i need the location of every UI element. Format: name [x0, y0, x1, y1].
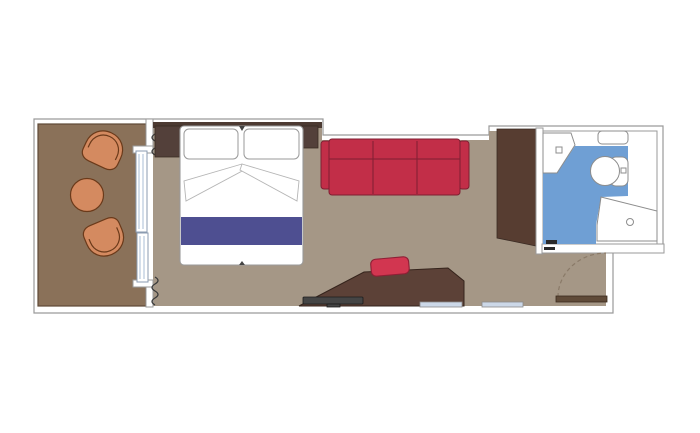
bathroom-wall-left — [536, 128, 543, 254]
sofa — [321, 139, 469, 195]
sofa-body — [329, 139, 460, 195]
mirror-strip-left — [420, 302, 462, 307]
toilet-flush-icon — [621, 168, 626, 173]
toilet-bowl — [591, 157, 620, 186]
pillow-right — [244, 129, 299, 159]
mirror-strip-right — [482, 302, 523, 307]
shower-drain-icon — [627, 219, 634, 226]
sliding-glass-door — [136, 151, 148, 282]
bathroom-wall-bottom — [542, 244, 664, 253]
blanket-runner — [181, 217, 302, 245]
round-table — [71, 179, 104, 212]
pillow-left — [184, 129, 238, 159]
wardrobe — [497, 129, 536, 246]
floor-plan-page — [0, 0, 700, 433]
double-bed — [180, 126, 303, 265]
nightstand-right — [302, 126, 318, 148]
toilet — [591, 157, 629, 187]
nightstand-left — [155, 126, 182, 157]
stool — [370, 256, 409, 276]
floor-plan — [0, 0, 700, 433]
sink-drain-icon — [556, 147, 562, 153]
shelf — [598, 131, 628, 144]
entrance-door — [556, 296, 607, 302]
